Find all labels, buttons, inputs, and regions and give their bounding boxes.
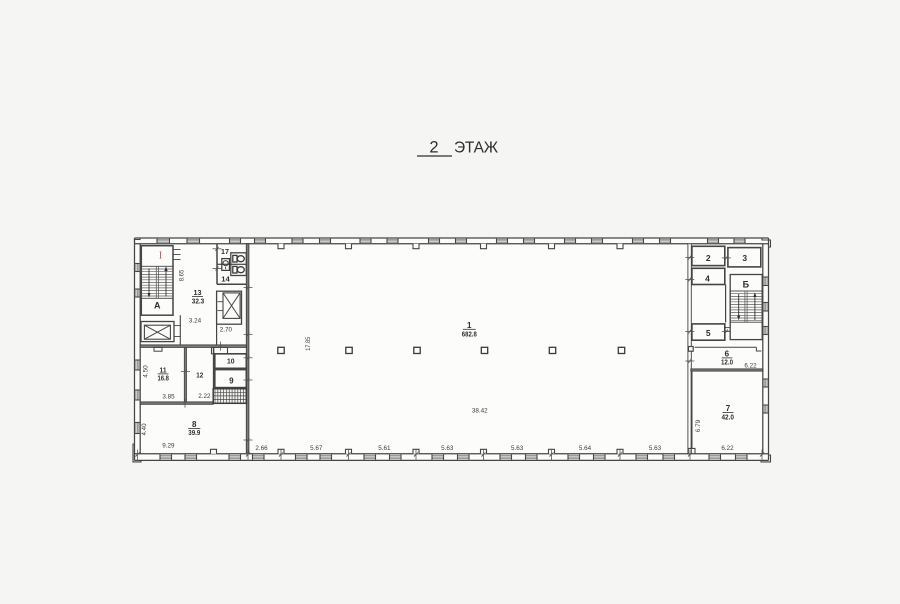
svg-text:1: 1 — [467, 321, 472, 330]
svg-text:38.42: 38.42 — [472, 407, 488, 414]
svg-text:4.40: 4.40 — [141, 423, 148, 436]
svg-text:5: 5 — [706, 328, 711, 338]
svg-text:3.24: 3.24 — [189, 318, 202, 325]
svg-text:17.85: 17.85 — [305, 336, 312, 351]
svg-text:6: 6 — [725, 349, 730, 358]
svg-text:11: 11 — [160, 366, 167, 375]
svg-text:2: 2 — [706, 253, 711, 263]
svg-text:4.50: 4.50 — [143, 365, 150, 378]
svg-text:17: 17 — [221, 247, 229, 256]
svg-text:5.63: 5.63 — [511, 445, 524, 452]
svg-text:39.9: 39.9 — [188, 430, 200, 437]
svg-text:2.22: 2.22 — [198, 393, 211, 400]
svg-text:2.70: 2.70 — [220, 327, 233, 334]
svg-text:4: 4 — [705, 273, 710, 283]
svg-text:5.61: 5.61 — [378, 445, 391, 452]
svg-text:8: 8 — [192, 420, 197, 429]
svg-text:42.0: 42.0 — [721, 415, 734, 422]
svg-text:8.65: 8.65 — [179, 269, 186, 281]
svg-text:5.67: 5.67 — [310, 445, 323, 452]
svg-text:9.29: 9.29 — [162, 443, 175, 450]
svg-text:3.85: 3.85 — [162, 394, 175, 401]
svg-text:5.64: 5.64 — [579, 445, 592, 452]
svg-text:6.79: 6.79 — [695, 419, 702, 432]
svg-text:14: 14 — [221, 274, 230, 283]
svg-text:2: 2 — [429, 139, 438, 157]
svg-text:2.66: 2.66 — [255, 445, 268, 452]
svg-text:32.3: 32.3 — [192, 298, 205, 305]
svg-text:5.63: 5.63 — [441, 445, 454, 452]
svg-text:3: 3 — [742, 253, 747, 263]
svg-text:12.0: 12.0 — [721, 359, 733, 366]
svg-text:ЭТАЖ: ЭТАЖ — [454, 140, 499, 157]
svg-text:10: 10 — [227, 356, 235, 365]
svg-text:5.63: 5.63 — [649, 445, 662, 452]
svg-text:16.8: 16.8 — [157, 376, 169, 383]
svg-text:I: I — [159, 251, 162, 262]
svg-text:А: А — [154, 300, 161, 310]
svg-text:13: 13 — [194, 288, 202, 297]
svg-text:7: 7 — [726, 404, 731, 413]
svg-text:12: 12 — [196, 370, 203, 379]
svg-text:Б: Б — [743, 280, 750, 290]
svg-text:6.22: 6.22 — [721, 445, 734, 452]
svg-text:682.8: 682.8 — [462, 331, 477, 338]
svg-text:9: 9 — [229, 376, 234, 385]
